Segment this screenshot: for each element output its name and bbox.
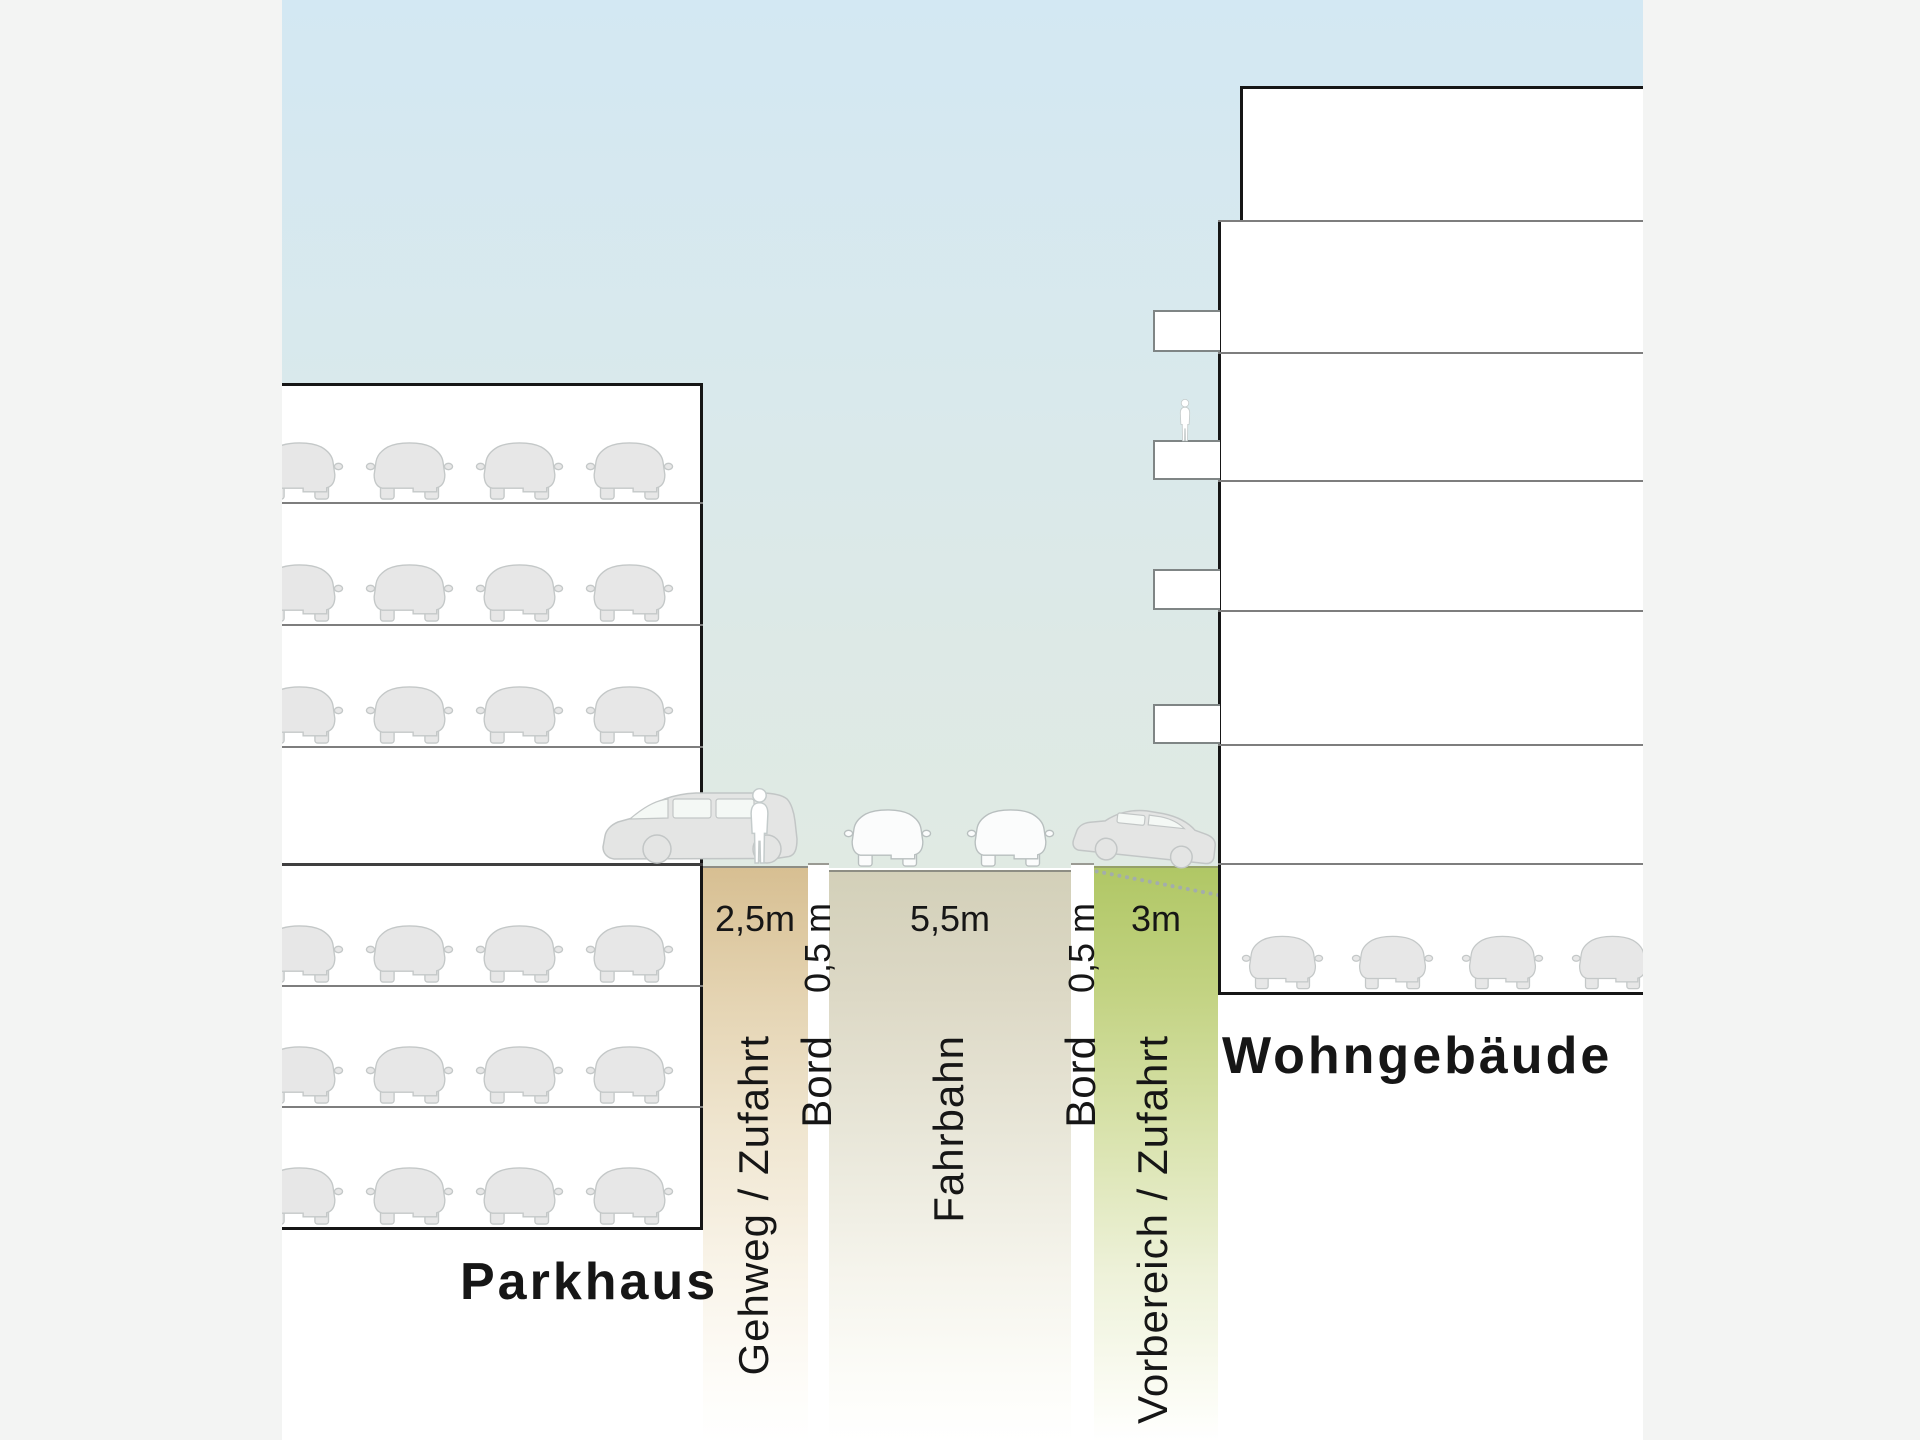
pedestrian-icon — [746, 788, 773, 865]
zone-label-gehweg: Gehweg / Zufahrt — [733, 1035, 775, 1376]
balcony — [1153, 704, 1220, 744]
parked-car-icon — [282, 1044, 343, 1106]
wohngebaeude-building — [1218, 220, 1643, 995]
parked-car-icon — [282, 684, 343, 746]
parked-car-icon — [476, 562, 563, 624]
floor-line — [1218, 610, 1643, 612]
parked-car-icon — [586, 684, 673, 746]
wohngebaeude-title: Wohngebäude — [1222, 1026, 1612, 1086]
floor-line — [282, 502, 703, 504]
parked-car-icon — [586, 562, 673, 624]
floor-line — [1218, 352, 1643, 354]
wohngebaeude-penthouse — [1240, 86, 1643, 223]
parked-car-icon — [476, 923, 563, 985]
measurement-vorbereich: 3m — [1094, 898, 1218, 940]
parked-car-icon — [476, 684, 563, 746]
parked-car-icon — [476, 440, 563, 502]
parked-car-icon — [476, 1044, 563, 1106]
parked-car-icon — [366, 1044, 453, 1106]
zone-label-vorbereich: Vorbereich / Zufahrt — [1132, 1035, 1174, 1424]
parked-car-icon — [586, 1165, 673, 1227]
parked-car-icon — [282, 1165, 343, 1227]
garage-car-icon — [1242, 932, 1323, 993]
parked-car-icon — [366, 684, 453, 746]
balcony — [1153, 310, 1220, 352]
parked-car-icon — [586, 1044, 673, 1106]
street-cross-section-diagram: 2,5m 0,5 m 5,5m 0,5 m 3m Gehweg / Zufahr… — [282, 0, 1643, 1440]
parked-car-icon — [282, 562, 343, 624]
floor-line — [282, 624, 703, 626]
balcony — [1153, 440, 1220, 480]
floor-line — [282, 1106, 703, 1108]
floor-line — [1218, 863, 1643, 865]
garage-car-icon — [1572, 932, 1643, 993]
parked-car-icon — [282, 923, 343, 985]
floor-line — [282, 985, 703, 987]
parked-car-icon — [282, 440, 343, 502]
floor-line — [282, 746, 703, 748]
balcony — [1153, 569, 1220, 610]
fahrbahn-car-icon — [844, 806, 931, 870]
parked-car-icon — [366, 923, 453, 985]
zone-label-bord-right: Bord — [1060, 1035, 1102, 1128]
parked-car-icon — [366, 562, 453, 624]
garage-car-icon — [1462, 932, 1543, 993]
floor-line — [1218, 480, 1643, 482]
parked-car-icon — [366, 1165, 453, 1227]
measurement-fahrbahn: 5,5m — [888, 898, 1012, 940]
parkhaus-title: Parkhaus — [460, 1252, 718, 1312]
zone-label-fahrbahn: Fahrbahn — [928, 1035, 970, 1223]
minivan-icon — [600, 787, 804, 865]
parked-car-icon — [476, 1165, 563, 1227]
page: 2,5m 0,5 m 5,5m 0,5 m 3m Gehweg / Zufahr… — [0, 0, 1920, 1440]
parked-car-icon — [586, 923, 673, 985]
measurement-bord-left: 0,5 m — [800, 903, 836, 993]
balcony-person-icon — [1172, 399, 1198, 442]
parked-car-icon — [586, 440, 673, 502]
parked-car-icon — [366, 440, 453, 502]
fahrbahn-car-icon — [967, 806, 1054, 870]
floor-line — [1218, 744, 1643, 746]
floor-line — [1218, 220, 1643, 222]
zone-label-bord-left: Bord — [796, 1035, 838, 1128]
garage-car-icon — [1352, 932, 1433, 993]
